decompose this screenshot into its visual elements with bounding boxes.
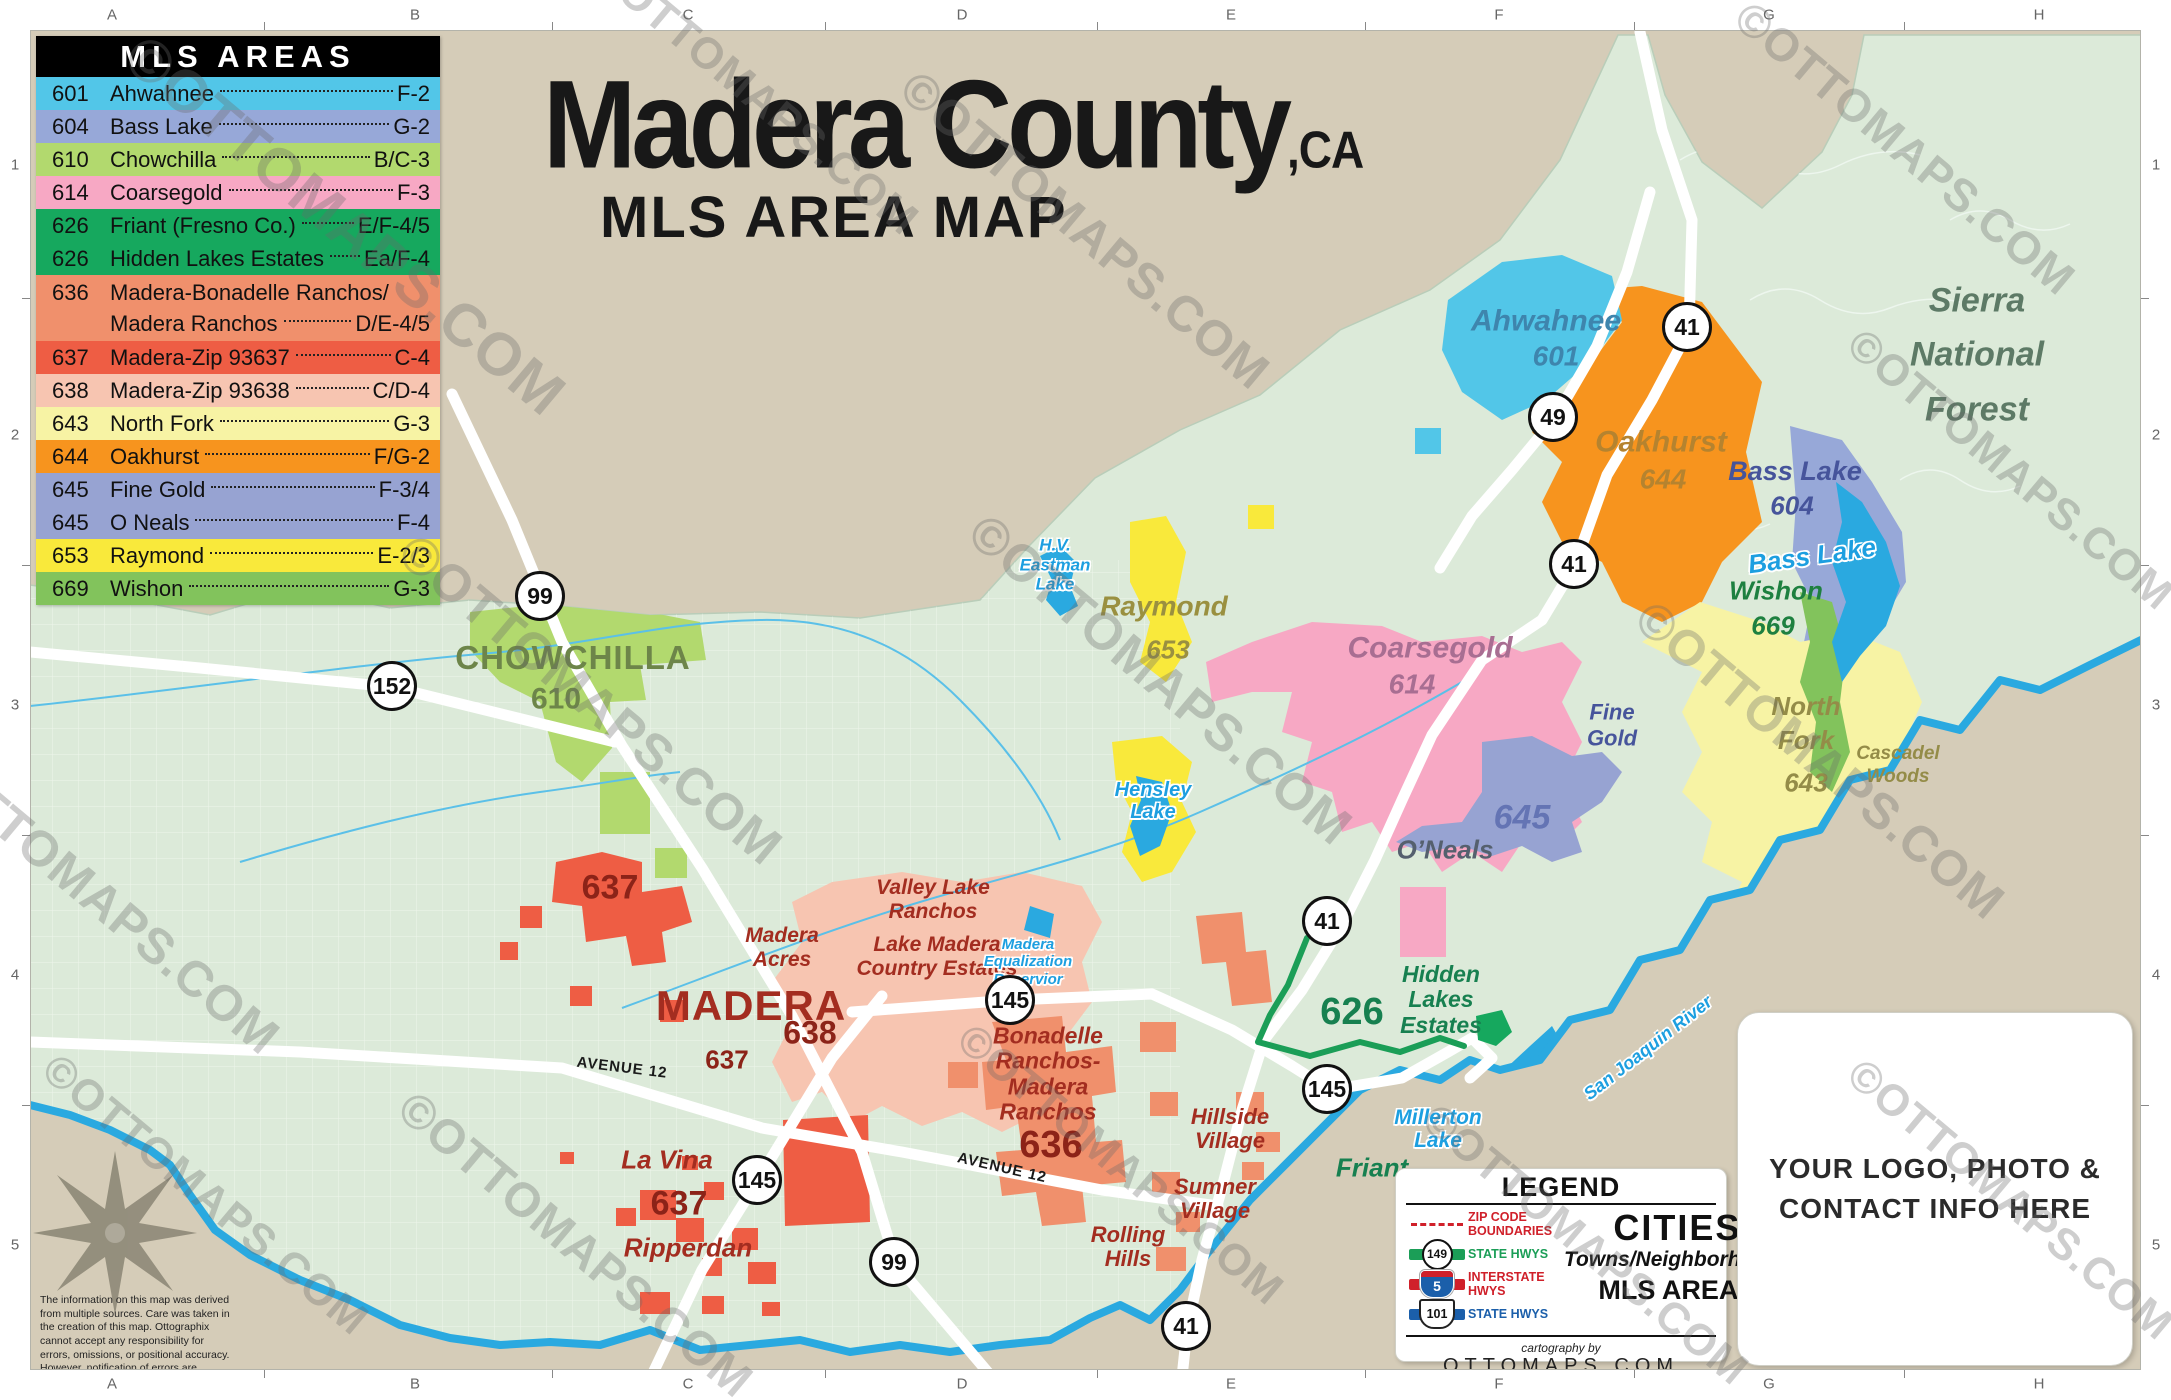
mls-areas-panel-title: MLS AREAS <box>36 36 440 77</box>
grid-row-3-left: 3 <box>11 697 19 714</box>
page-title-suffix: ,CA <box>1287 120 1363 178</box>
grid-row-1-left: 1 <box>11 157 19 174</box>
label-rolling-hills: RollingHills <box>1091 1223 1166 1271</box>
map-sheet: Madera County,CA MLS AREA MAP MLS AREAS … <box>0 0 2171 1400</box>
label-638-code: 638 <box>783 1016 836 1049</box>
grid-row-3-right: 3 <box>2152 697 2160 714</box>
mls-row-638: 638Madera-Zip 93638C/D-4 <box>36 374 440 407</box>
label-valley-lake-ranchos: Valley LakeRanchos <box>876 876 990 924</box>
grid-col-e-bottom: E <box>1226 1376 1236 1393</box>
label-coarsegold-code: 614 <box>1389 669 1436 698</box>
mls-row-669: 669WishonG-3 <box>36 572 440 605</box>
highway-shield-41: 41 <box>1662 302 1712 352</box>
label-coarsegold: Coarsegold <box>1347 632 1512 663</box>
grid-row-4-left: 4 <box>11 967 19 984</box>
label-wishon-code: 669 <box>1751 612 1794 639</box>
grid-col-b-bottom: B <box>410 1376 420 1393</box>
label-ripperdan: Ripperdan <box>624 1234 753 1261</box>
legend-interstate-hwys: 5 INTERSTATE HWYS <box>1406 1269 1564 1299</box>
highway-shield-49: 49 <box>1528 392 1578 442</box>
state-hwy-icon: 149 <box>1409 1249 1465 1260</box>
label-ahwahnee-code: 601 <box>1533 341 1580 370</box>
legend-state-hwys-green: 149 STATE HWYS <box>1406 1239 1564 1269</box>
label-oakhurst: Oakhurst <box>1595 426 1727 457</box>
highway-shield-41: 41 <box>1161 1301 1211 1351</box>
label-637-west: 637 <box>705 1046 748 1073</box>
us-hwy-icon: 101 <box>1409 1309 1465 1320</box>
grid-row-4-right: 4 <box>2152 967 2160 984</box>
label-fine-gold: FineGold <box>1587 700 1637 753</box>
label-hillside-village: HillsideVillage <box>1191 1105 1269 1153</box>
grid-col-e-top: E <box>1226 7 1236 24</box>
label-626-code: 626 <box>1320 993 1383 1033</box>
grid-col-h-top: H <box>2034 7 2045 24</box>
label-madera-acres: MaderaAcres <box>745 924 819 972</box>
highway-shield-145: 145 <box>732 1155 782 1205</box>
label-oneals: O’Neals <box>1397 836 1494 863</box>
highway-shield-145: 145 <box>985 975 1035 1025</box>
grid-col-f-top: F <box>1494 7 1503 24</box>
mls-row-643: 643North ForkG-3 <box>36 407 440 440</box>
label-bass-lake-code: 604 <box>1770 492 1813 519</box>
grid-col-d-top: D <box>957 7 968 24</box>
label-hensley-lake: HensleyLake <box>1115 779 1192 823</box>
highway-shield-41: 41 <box>1302 896 1352 946</box>
label-ahwahnee: Ahwahnee <box>1471 305 1621 336</box>
highway-shield-41: 41 <box>1549 539 1599 589</box>
label-bass-lake-region: Bass Lake <box>1728 457 1862 485</box>
highway-shield-99: 99 <box>869 1237 919 1287</box>
label-oakhurst-code: 644 <box>1640 464 1687 493</box>
label-645-code: 645 <box>1494 800 1551 835</box>
mls-row-637: 637Madera-Zip 93637C-4 <box>36 341 440 374</box>
mls-row-644: 644OakhurstF/G-2 <box>36 440 440 473</box>
label-637-main: 637 <box>582 870 639 905</box>
highway-shield-152: 152 <box>367 661 417 711</box>
legend-state-hwys-blue: 101 STATE HWYS <box>1406 1299 1564 1329</box>
mls-row-645-fine-gold: 645Fine GoldF-3/4 <box>36 473 440 506</box>
zip-boundary-icon <box>1411 1223 1463 1226</box>
label-637-south: 637 <box>651 1186 708 1221</box>
grid-col-h-bottom: H <box>2034 1376 2045 1393</box>
interstate-hwy-icon: 5 <box>1409 1279 1465 1290</box>
grid-col-f-bottom: F <box>1494 1376 1503 1393</box>
label-wishon: Wishon <box>1729 577 1823 604</box>
label-hidden-lakes-estates: HiddenLakesEstates <box>1400 962 1482 1038</box>
highway-shield-145: 145 <box>1302 1064 1352 1114</box>
grid-row-2-left: 2 <box>11 427 19 444</box>
grid-row-5-left: 5 <box>11 1237 19 1254</box>
grid-row-2-right: 2 <box>2152 427 2160 444</box>
mls-row-645-oneals: 645O NealsF-4 <box>36 506 440 539</box>
grid-col-d-bottom: D <box>957 1376 968 1393</box>
label-la-vina: La Vina <box>621 1146 713 1173</box>
grid-row-1-right: 1 <box>2152 157 2160 174</box>
grid-row-5-right: 5 <box>2152 1237 2160 1254</box>
mls-row-653: 653RaymondE-2/3 <box>36 539 440 572</box>
grid-col-b-top: B <box>410 7 420 24</box>
logo-placeholder-box: YOUR LOGO, PHOTO & CONTACT INFO HERE <box>1737 1012 2133 1366</box>
grid-col-a-top: A <box>107 7 117 24</box>
grid-col-g-bottom: G <box>1763 1376 1775 1393</box>
grid-col-a-bottom: A <box>107 1376 117 1393</box>
